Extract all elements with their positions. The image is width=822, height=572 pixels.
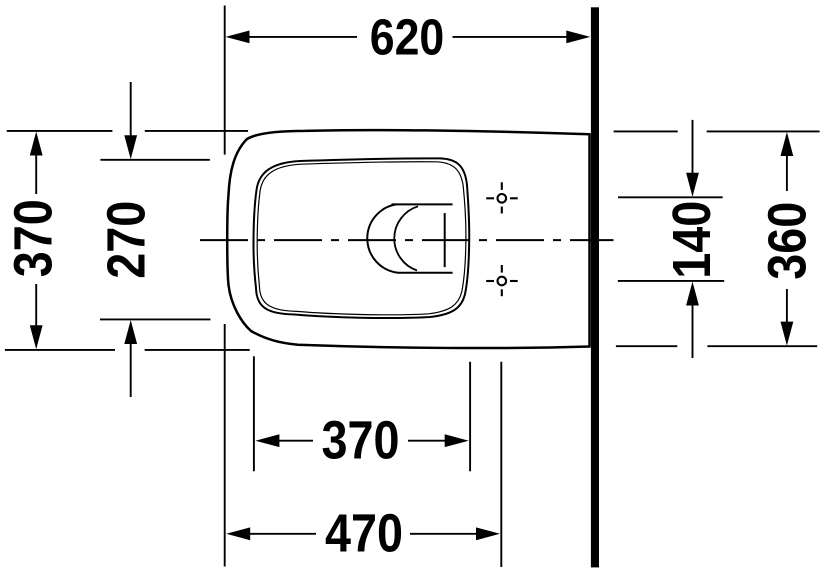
svg-text:470: 470 — [325, 503, 403, 563]
svg-text:620: 620 — [370, 9, 445, 66]
svg-text:370: 370 — [4, 199, 64, 277]
svg-text:360: 360 — [758, 202, 818, 280]
svg-text:370: 370 — [322, 410, 400, 470]
svg-text:140: 140 — [662, 201, 722, 279]
svg-text:270: 270 — [97, 201, 157, 279]
